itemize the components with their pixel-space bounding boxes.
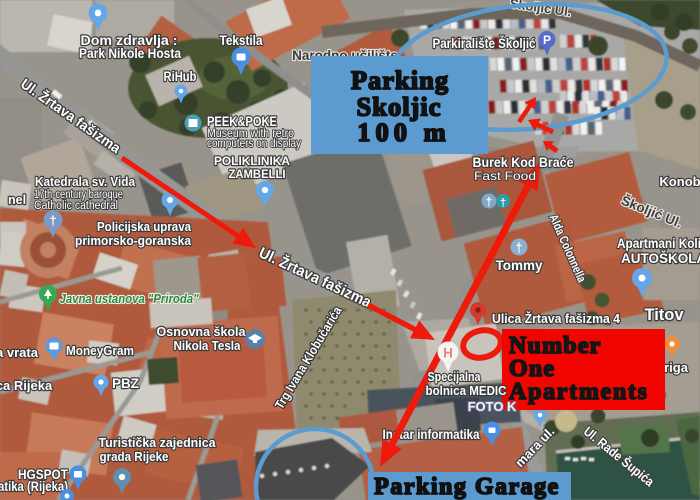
svg-text:primorsko-goranska: primorsko-goranska [75,234,192,248]
svg-text:RiHub: RiHub [164,69,197,84]
svg-text:Burek Kod Braće: Burek Kod Braće [473,155,574,170]
svg-text:Turistička zajednica: Turistička zajednica [99,435,217,450]
svg-text:Policijska uprava: Policijska uprava [97,220,192,234]
svg-text:Ulica Žrtava fašizma 4: Ulica Žrtava fašizma 4 [492,311,620,326]
svg-text:†: † [49,213,56,228]
svg-text:Park Nikole Hosta: Park Nikole Hosta [79,46,181,61]
svg-text:ZAMBELLI: ZAMBELLI [229,167,286,181]
svg-text:Javna ustanova "Priroda": Javna ustanova "Priroda" [60,292,200,306]
svg-text:bolnica MEDIC: bolnica MEDIC [426,383,508,398]
svg-text:Specijalna: Specijalna [428,369,482,384]
svg-text:Konob: Konob [659,174,700,189]
svg-text:ca Rijeka: ca Rijeka [0,378,53,393]
svg-text:PBZ: PBZ [112,376,139,391]
svg-text:FOTO K: FOTO K [468,399,517,414]
svg-text:nel: nel [8,193,26,207]
svg-text:a vrata: a vrata [0,345,39,360]
svg-text:Parkiralište Školjić: Parkiralište Školjić [433,36,536,51]
svg-text:†: † [500,197,506,209]
svg-text:AUTOŠKOLA F: AUTOŠKOLA F [621,251,700,266]
svg-text:riga: riga [664,360,689,375]
svg-text:Osnovna škola: Osnovna škola [157,324,247,339]
svg-text:Nikola Tesla: Nikola Tesla [174,338,242,353]
svg-text:POLIKLINIKA: POLIKLINIKA [214,154,290,168]
svg-text:Apartmani Koli: Apartmani Koli [617,236,700,251]
svg-text:†: † [516,241,523,255]
svg-text:MoneyGram: MoneyGram [66,343,134,358]
svg-text:100 m: 100 m [357,117,450,147]
svg-text:Parking Garage: Parking Garage [374,474,560,500]
svg-text:Katedrala sv. Vida: Katedrala sv. Vida [35,174,136,189]
svg-text:Titov: Titov [644,306,684,324]
svg-text:P: P [543,33,551,47]
svg-text:†: † [486,197,492,209]
svg-text:Tommy: Tommy [495,258,542,273]
svg-text:grada Rijeke: grada Rijeke [100,449,169,464]
svg-text:H: H [443,346,453,361]
svg-text:Parking: Parking [351,65,449,95]
svg-text:Tekstila: Tekstila [220,33,263,48]
svg-text:computers on display: computers on display [207,136,301,150]
svg-text:Apartments: Apartments [509,379,649,405]
svg-text:Catholic cathedral: Catholic cathedral [34,200,118,212]
svg-text:atika (Rijeka): atika (Rijeka) [0,478,68,494]
svg-text:Fast Food: Fast Food [474,169,536,183]
